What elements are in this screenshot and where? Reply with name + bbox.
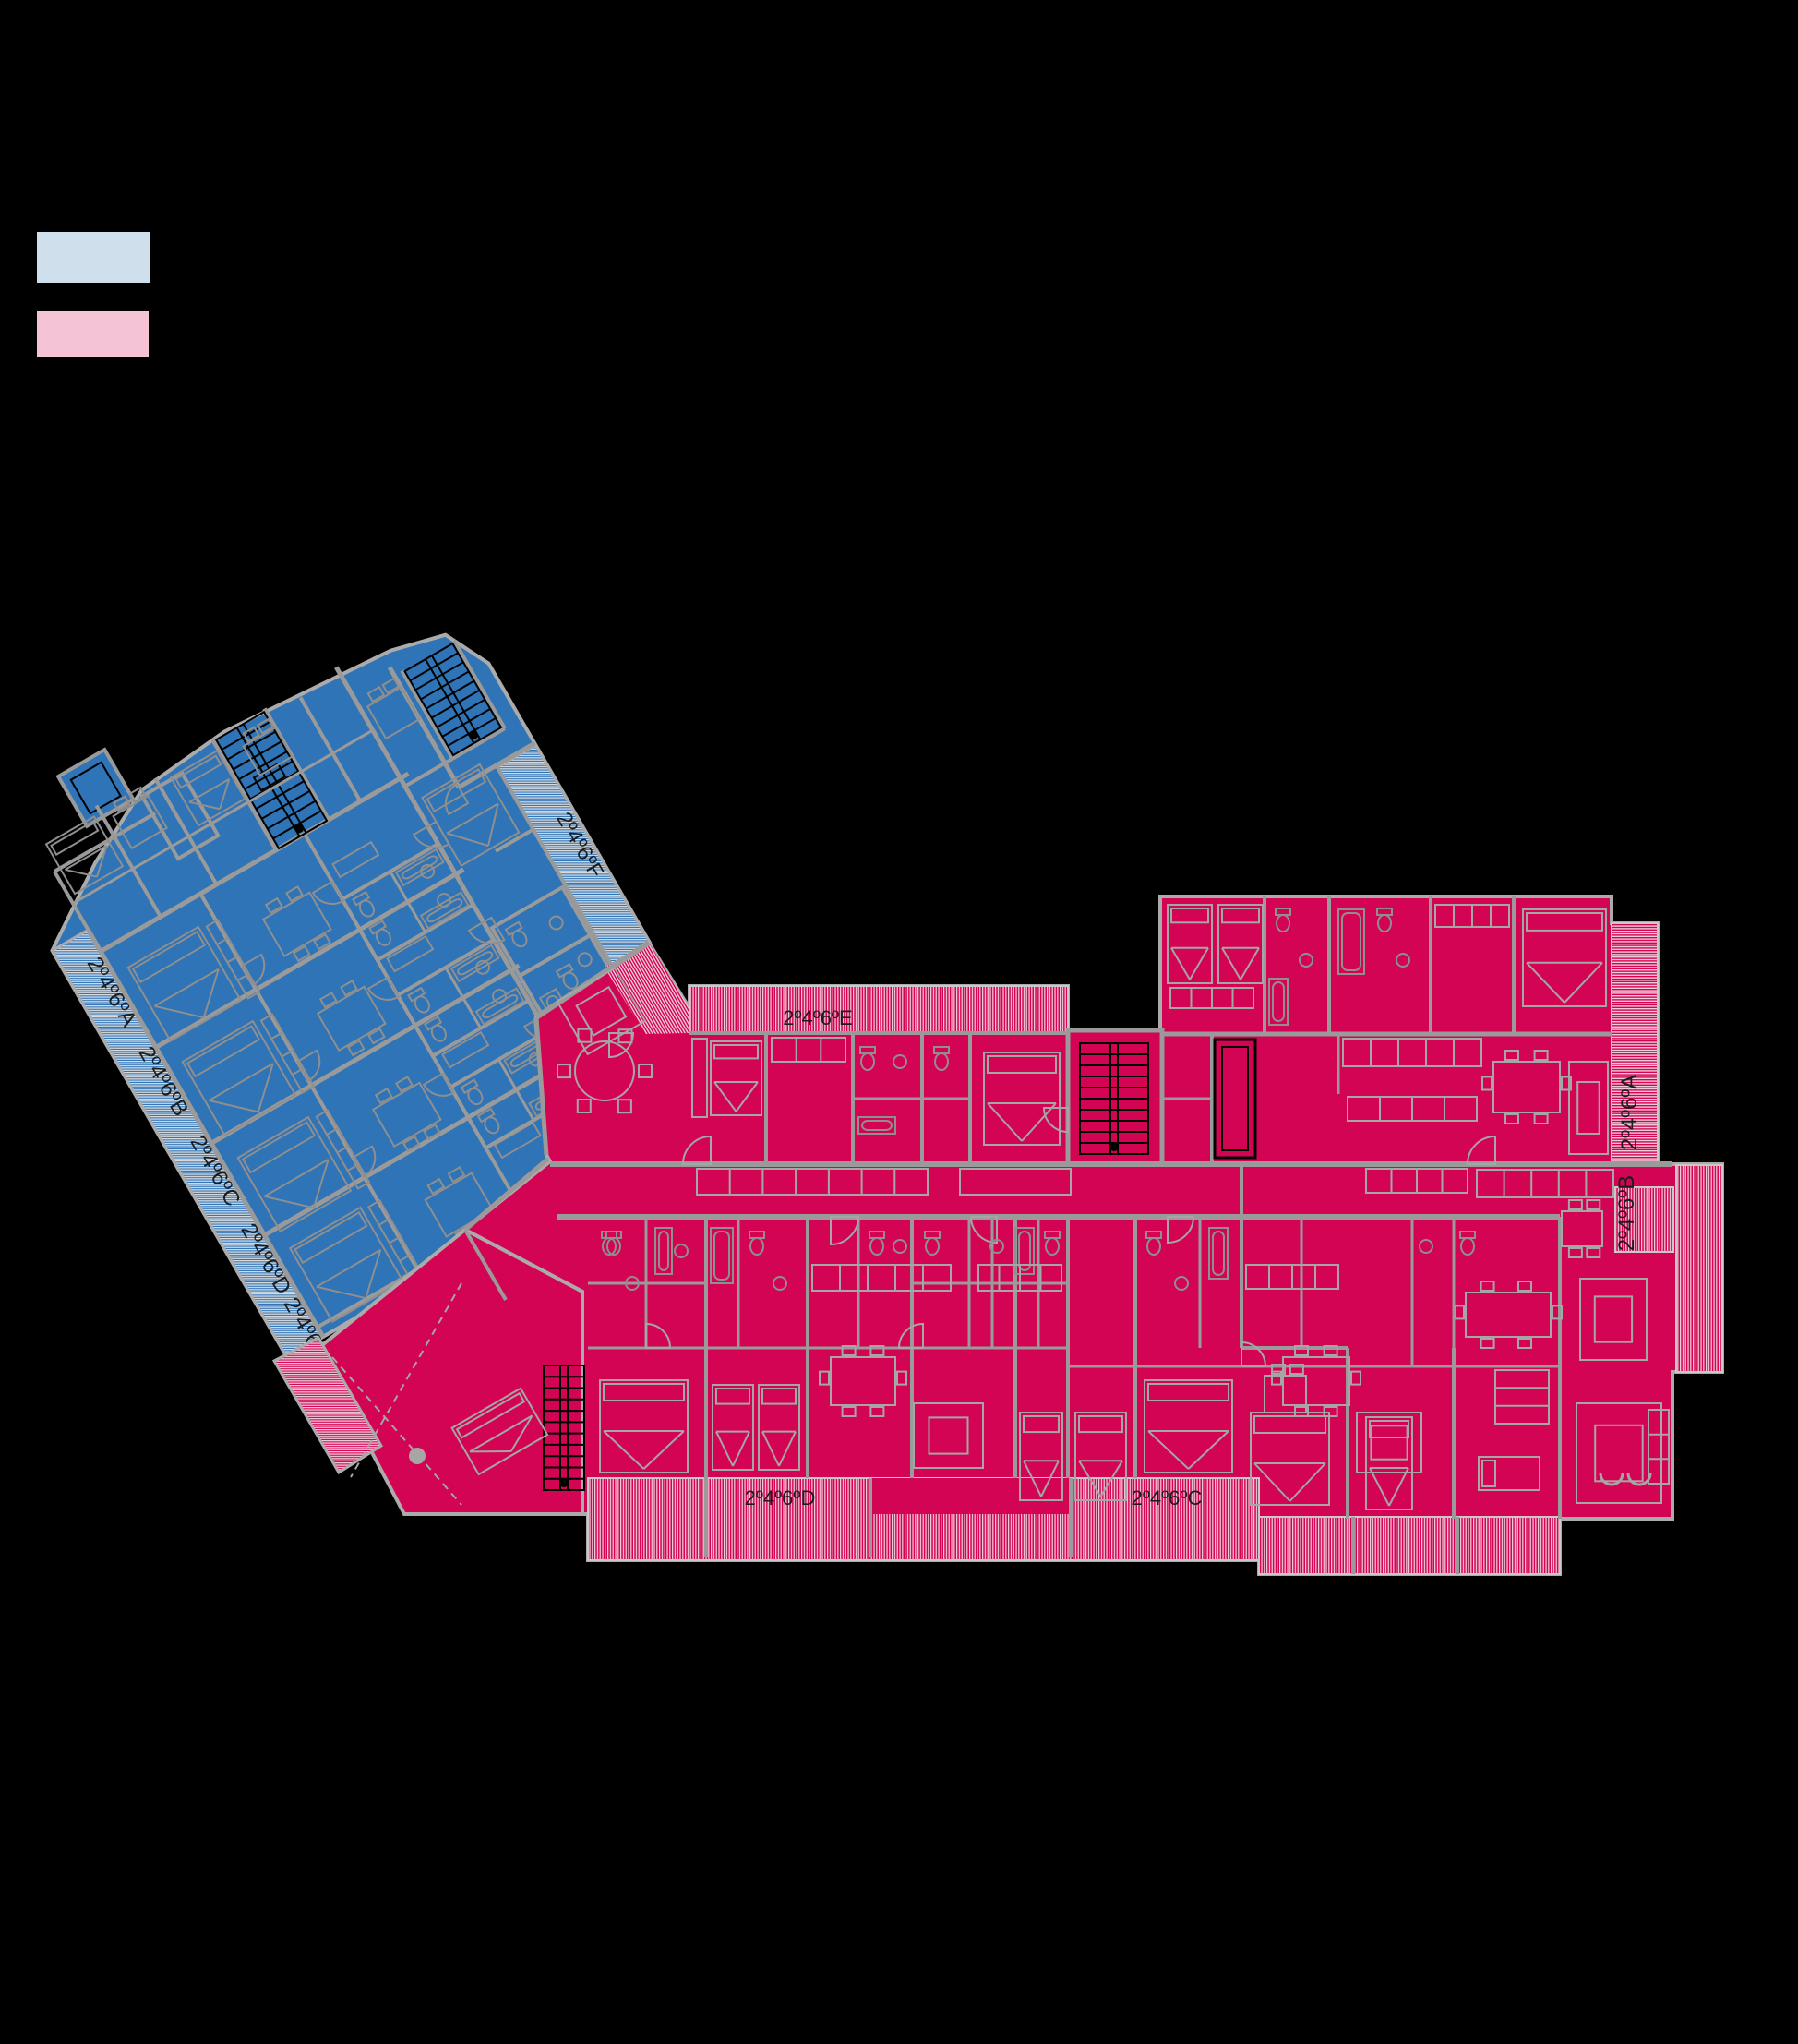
svg-text:2º4º6ºD: 2º4º6ºD bbox=[745, 1486, 816, 1509]
svg-text:2º4º6ºE: 2º4º6ºE bbox=[783, 1006, 853, 1029]
svg-text:2º4º6ºB: 2º4º6ºB bbox=[1614, 1175, 1639, 1251]
svg-text:2º4º6ºC: 2º4º6ºC bbox=[1132, 1486, 1203, 1509]
svg-text:2º4º6ºA: 2º4º6ºA bbox=[1617, 1075, 1642, 1150]
